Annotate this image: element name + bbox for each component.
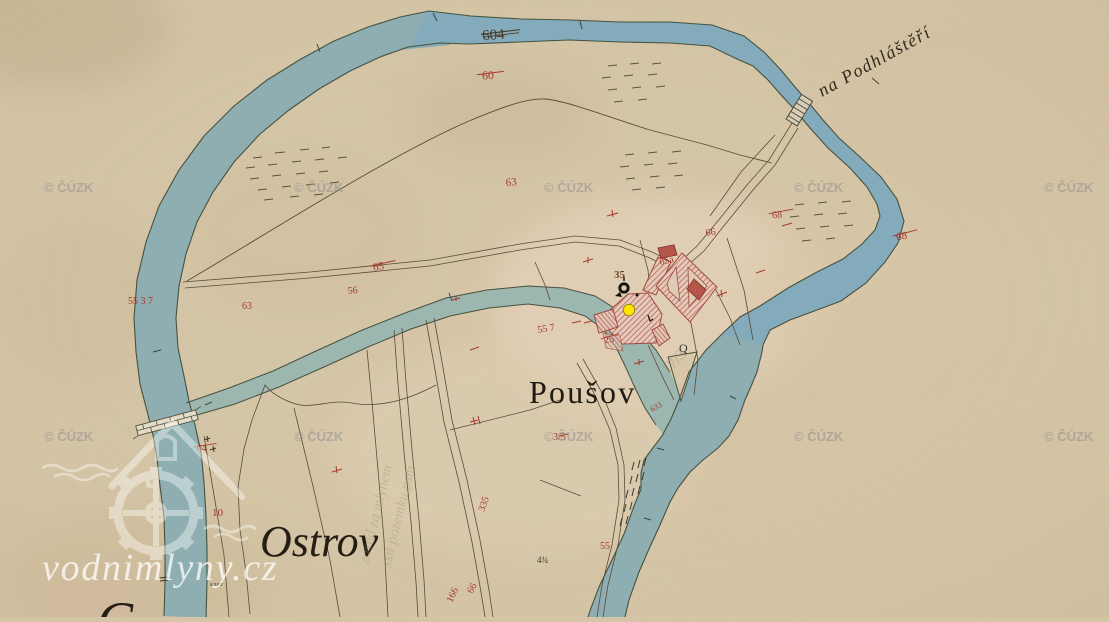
svg-text:Q: Q	[679, 341, 688, 355]
svg-text:56: 56	[347, 285, 358, 297]
svg-text:© ČÚZK: © ČÚZK	[544, 180, 594, 195]
svg-text:© ČÚZK: © ČÚZK	[294, 180, 344, 195]
svg-text:60: 60	[482, 68, 495, 83]
svg-text:© ČÚZK: © ČÚZK	[44, 180, 94, 195]
svg-text:© ČÚZK: © ČÚZK	[544, 429, 594, 444]
svg-text:63: 63	[242, 301, 252, 312]
svg-text:© ČÚZK: © ČÚZK	[794, 429, 844, 444]
svg-text:4¾: 4¾	[537, 555, 549, 565]
svg-text:35: 35	[614, 269, 626, 281]
svg-text:© ČÚZK: © ČÚZK	[1044, 180, 1094, 195]
svg-text:604: 604	[482, 27, 506, 45]
svg-text:© ČÚZK: © ČÚZK	[794, 180, 844, 195]
svg-text:© ČÚZK: © ČÚZK	[1044, 429, 1094, 444]
svg-text:65: 65	[372, 260, 385, 273]
svg-text:© ČÚZK: © ČÚZK	[294, 429, 344, 444]
svg-text:10: 10	[212, 507, 224, 519]
svg-text:Poušov: Poušov	[529, 374, 636, 410]
svg-text:55: 55	[600, 541, 610, 552]
svg-text:© ČÚZK: © ČÚZK	[44, 429, 94, 444]
svg-text:vodnimlyny.cz: vodnimlyny.cz	[42, 547, 278, 589]
svg-text:63: 63	[505, 176, 518, 189]
svg-text:66: 66	[705, 227, 716, 239]
svg-text:C: C	[97, 591, 134, 617]
svg-text:55 3 7: 55 3 7	[128, 296, 153, 307]
